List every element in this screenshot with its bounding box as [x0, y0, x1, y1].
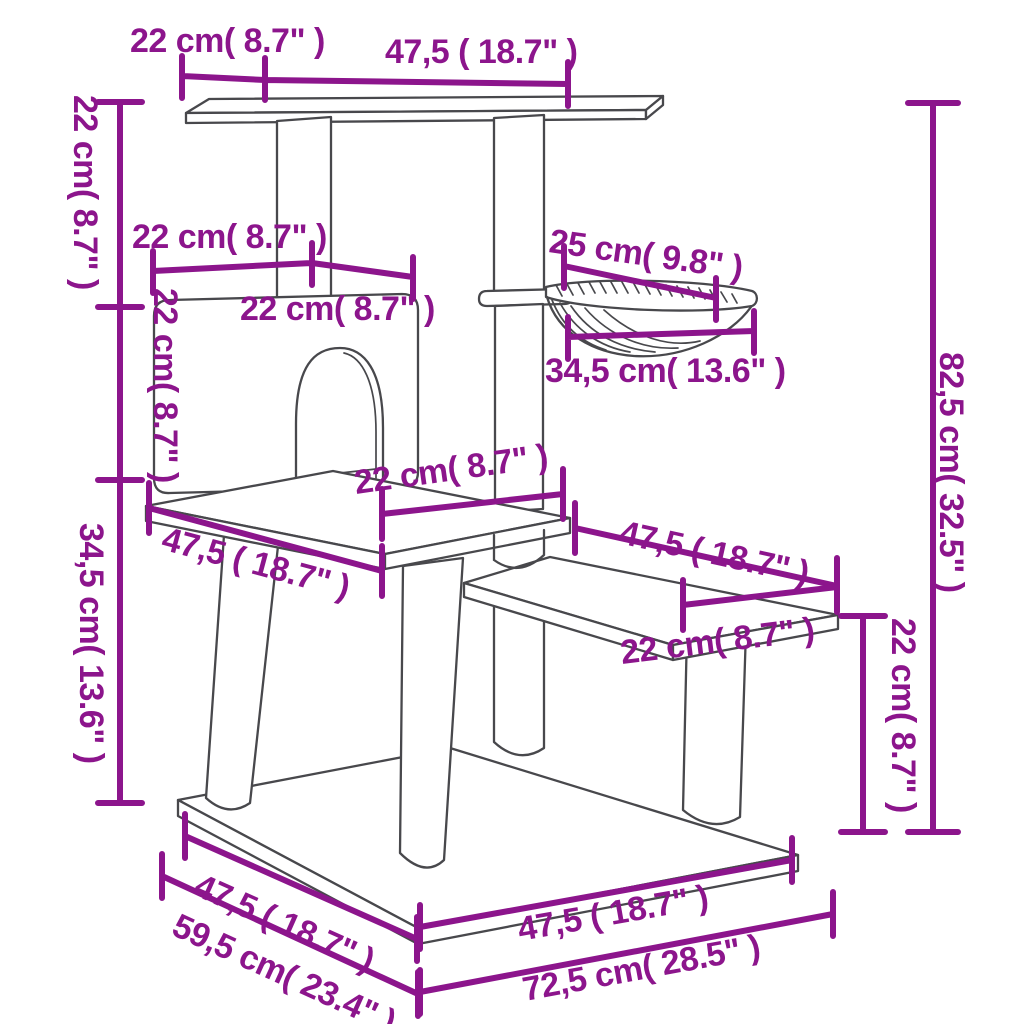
left-post [277, 117, 331, 306]
cat-tree-dimension-diagram: 22 cm( 8.7" ) 47,5 ( 18.7" ) 22 cm( 8.7"… [0, 0, 1024, 1024]
dim-label-house-height: 22 cm( 8.7" ) [146, 288, 184, 483]
dim-label-house-depth: 22 cm( 8.7" ) [240, 290, 435, 328]
dim-label-hammock-width: 34,5 cm( 13.6" ) [545, 352, 786, 390]
dim-label-house-width: 22 cm( 8.7" ) [132, 218, 327, 256]
dim-label-left-upper-height: 22 cm( 8.7" ) [66, 95, 104, 290]
dim-label-top-width: 47,5 ( 18.7" ) [385, 33, 577, 71]
dim-label-left-lower-height: 34,5 cm( 13.6" ) [72, 523, 110, 764]
center-post-upper [494, 115, 544, 293]
dim-label-top-left-width: 22 cm( 8.7" ) [130, 22, 325, 60]
hammock [546, 281, 757, 357]
dim-label-hammock-top-width: 25 cm( 9.8" ) [547, 222, 745, 287]
dim-label-step-height: 22 cm( 8.7" ) [884, 618, 922, 813]
top-platform [186, 96, 663, 123]
dim-label-total-height: 82,5 cm( 32.5" ) [932, 352, 970, 593]
